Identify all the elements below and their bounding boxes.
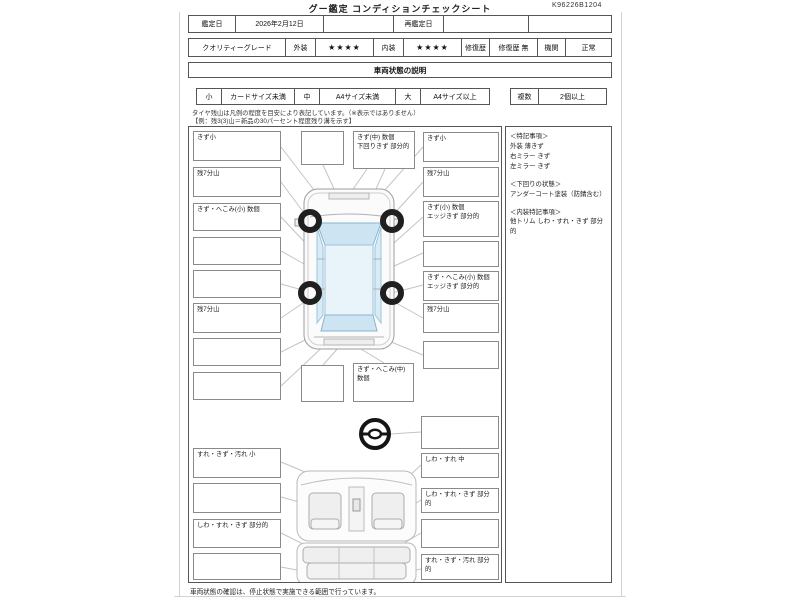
size-large-label: 大 [396,89,421,104]
exterior-note-box [193,270,281,298]
re-appraisal-date-label: 再鑑定日 [394,16,444,32]
engine-label: 機関 [538,39,566,56]
re-appraisal-date-value [444,16,529,32]
appraisal-date-value: 2026年2月12日 [236,16,324,32]
exterior-note-box: 残7分山 [193,303,281,333]
size-large-value: A4サイズ以上 [421,89,489,104]
interior-note-box [193,483,281,513]
underbody-note-line: アンダーコート塗装（防錆含む） [510,190,607,200]
size-legend: 小 カードサイズ未満 中 A4サイズ未満 大 A4サイズ以上 [196,88,490,105]
interior-note-box: しわ・すれ・きず 部分的 [193,519,281,548]
special-note-line: 左ミラー きず [510,162,607,172]
exterior-note-box: きず小 [193,131,281,161]
page-edge-right [621,12,622,597]
page-edge-left [179,12,180,597]
exterior-note-box: きず(小) 数個 エッジきず 部分的 [423,201,499,237]
interior-star-rating: ★★★★ [404,39,462,56]
exterior-note-box: きず(中) 数個 下回りきず 部分的 [353,131,415,169]
footer-note: 車両状態の確認は、停止状態で実施できる範囲で行っています。 [190,586,380,596]
interior-label: 内装 [374,39,404,56]
exterior-note-box [301,131,344,165]
size-small-label: 小 [197,89,222,104]
appraisal-blank-cell2 [529,16,611,32]
quality-grade-row: クオリティーグレード 外装 ★★★★ 内装 ★★★★ 修復歴 修復歴 無 機関 … [188,38,612,57]
appraisal-blank-cell [324,16,394,32]
multiple-legend: 複数 2個以上 [510,88,607,105]
special-notes-heading: ＜特記事項＞ [510,132,607,142]
exterior-note-box: 残7分山 [423,303,499,333]
appraisal-date-label: 鑑定日 [189,16,236,32]
repair-history-label: 修復歴 [462,39,490,56]
exterior-note-box: きず・へこみ(小) 数個 [193,203,281,231]
steering-note-box [421,416,499,449]
engine-value: 正常 [566,39,611,56]
tire-note-line2: 【例：残3(3)山＝新品の30パーセント程度残り溝を示す】 [192,116,355,125]
interior-note-box [193,553,281,580]
interior-notes-heading: ＜内装特記事項＞ [510,208,607,218]
multiple-value: 2個以上 [539,89,606,104]
appraisal-date-row: 鑑定日 2026年2月12日 再鑑定日 [188,15,612,33]
condition-check-sheet: グー鑑定 コンディションチェックシート K96226B1204 鑑定日 2026… [0,0,800,600]
size-small-value: カードサイズ未満 [222,89,295,104]
size-medium-value: A4サイズ未満 [320,89,396,104]
repair-history-value: 修復歴 無 [490,39,538,56]
document-number: K96226B1204 [552,2,602,9]
quality-grade-label: クオリティーグレード [189,39,286,56]
exterior-note-box [301,365,344,402]
section-title: 車両状態の説明 [188,62,612,78]
steering-wheel-icon [361,420,389,448]
special-notes-panel: ＜特記事項＞ 外装 薄きず 右ミラー きず 左ミラー きず ＜下回りの状態＞ ア… [505,126,612,583]
exterior-note-box [193,372,281,400]
exterior-star-rating: ★★★★ [316,39,374,56]
multiple-label: 複数 [511,89,539,104]
vehicle-diagram-panel: きず小 残7分山 きず・へこみ(小) 数個 残7分山 きず(中) 数個 下回りき… [188,126,502,583]
exterior-note-box [193,338,281,366]
underbody-heading: ＜下回りの状態＞ [510,180,607,190]
car-top-view [295,189,403,349]
exterior-note-box [423,341,499,369]
exterior-note-box: きず・へこみ(中) 数個 [353,363,414,402]
interior-note-box: すれ・きず・汚れ 部分的 [421,554,499,580]
special-note-line: 右ミラー きず [510,152,607,162]
interior-note-box: すれ・きず・汚れ 小 [193,448,281,478]
exterior-note-box [423,241,499,267]
page-edge-bottom [174,596,626,597]
exterior-note-box: きず・へこみ(小) 数個 エッジきず 部分的 [423,271,499,301]
exterior-note-box [193,237,281,265]
interior-note-box: しわ・すれ・きず 部分的 [421,488,499,513]
page-title: グー鑑定 コンディションチェックシート [0,2,800,15]
exterior-note-box: 残7分山 [423,167,499,197]
interior-note-box [421,519,499,548]
special-note-line: 外装 薄きず [510,142,607,152]
exterior-label: 外装 [286,39,316,56]
exterior-note-box: きず小 [423,132,499,162]
exterior-note-box: 残7分山 [193,167,281,197]
interior-note-line: 他トリム しわ・すれ・きず 部分的 [510,217,607,237]
size-medium-label: 中 [295,89,320,104]
interior-top-view [297,471,416,582]
interior-note-box: しわ・すれ 中 [421,453,499,478]
